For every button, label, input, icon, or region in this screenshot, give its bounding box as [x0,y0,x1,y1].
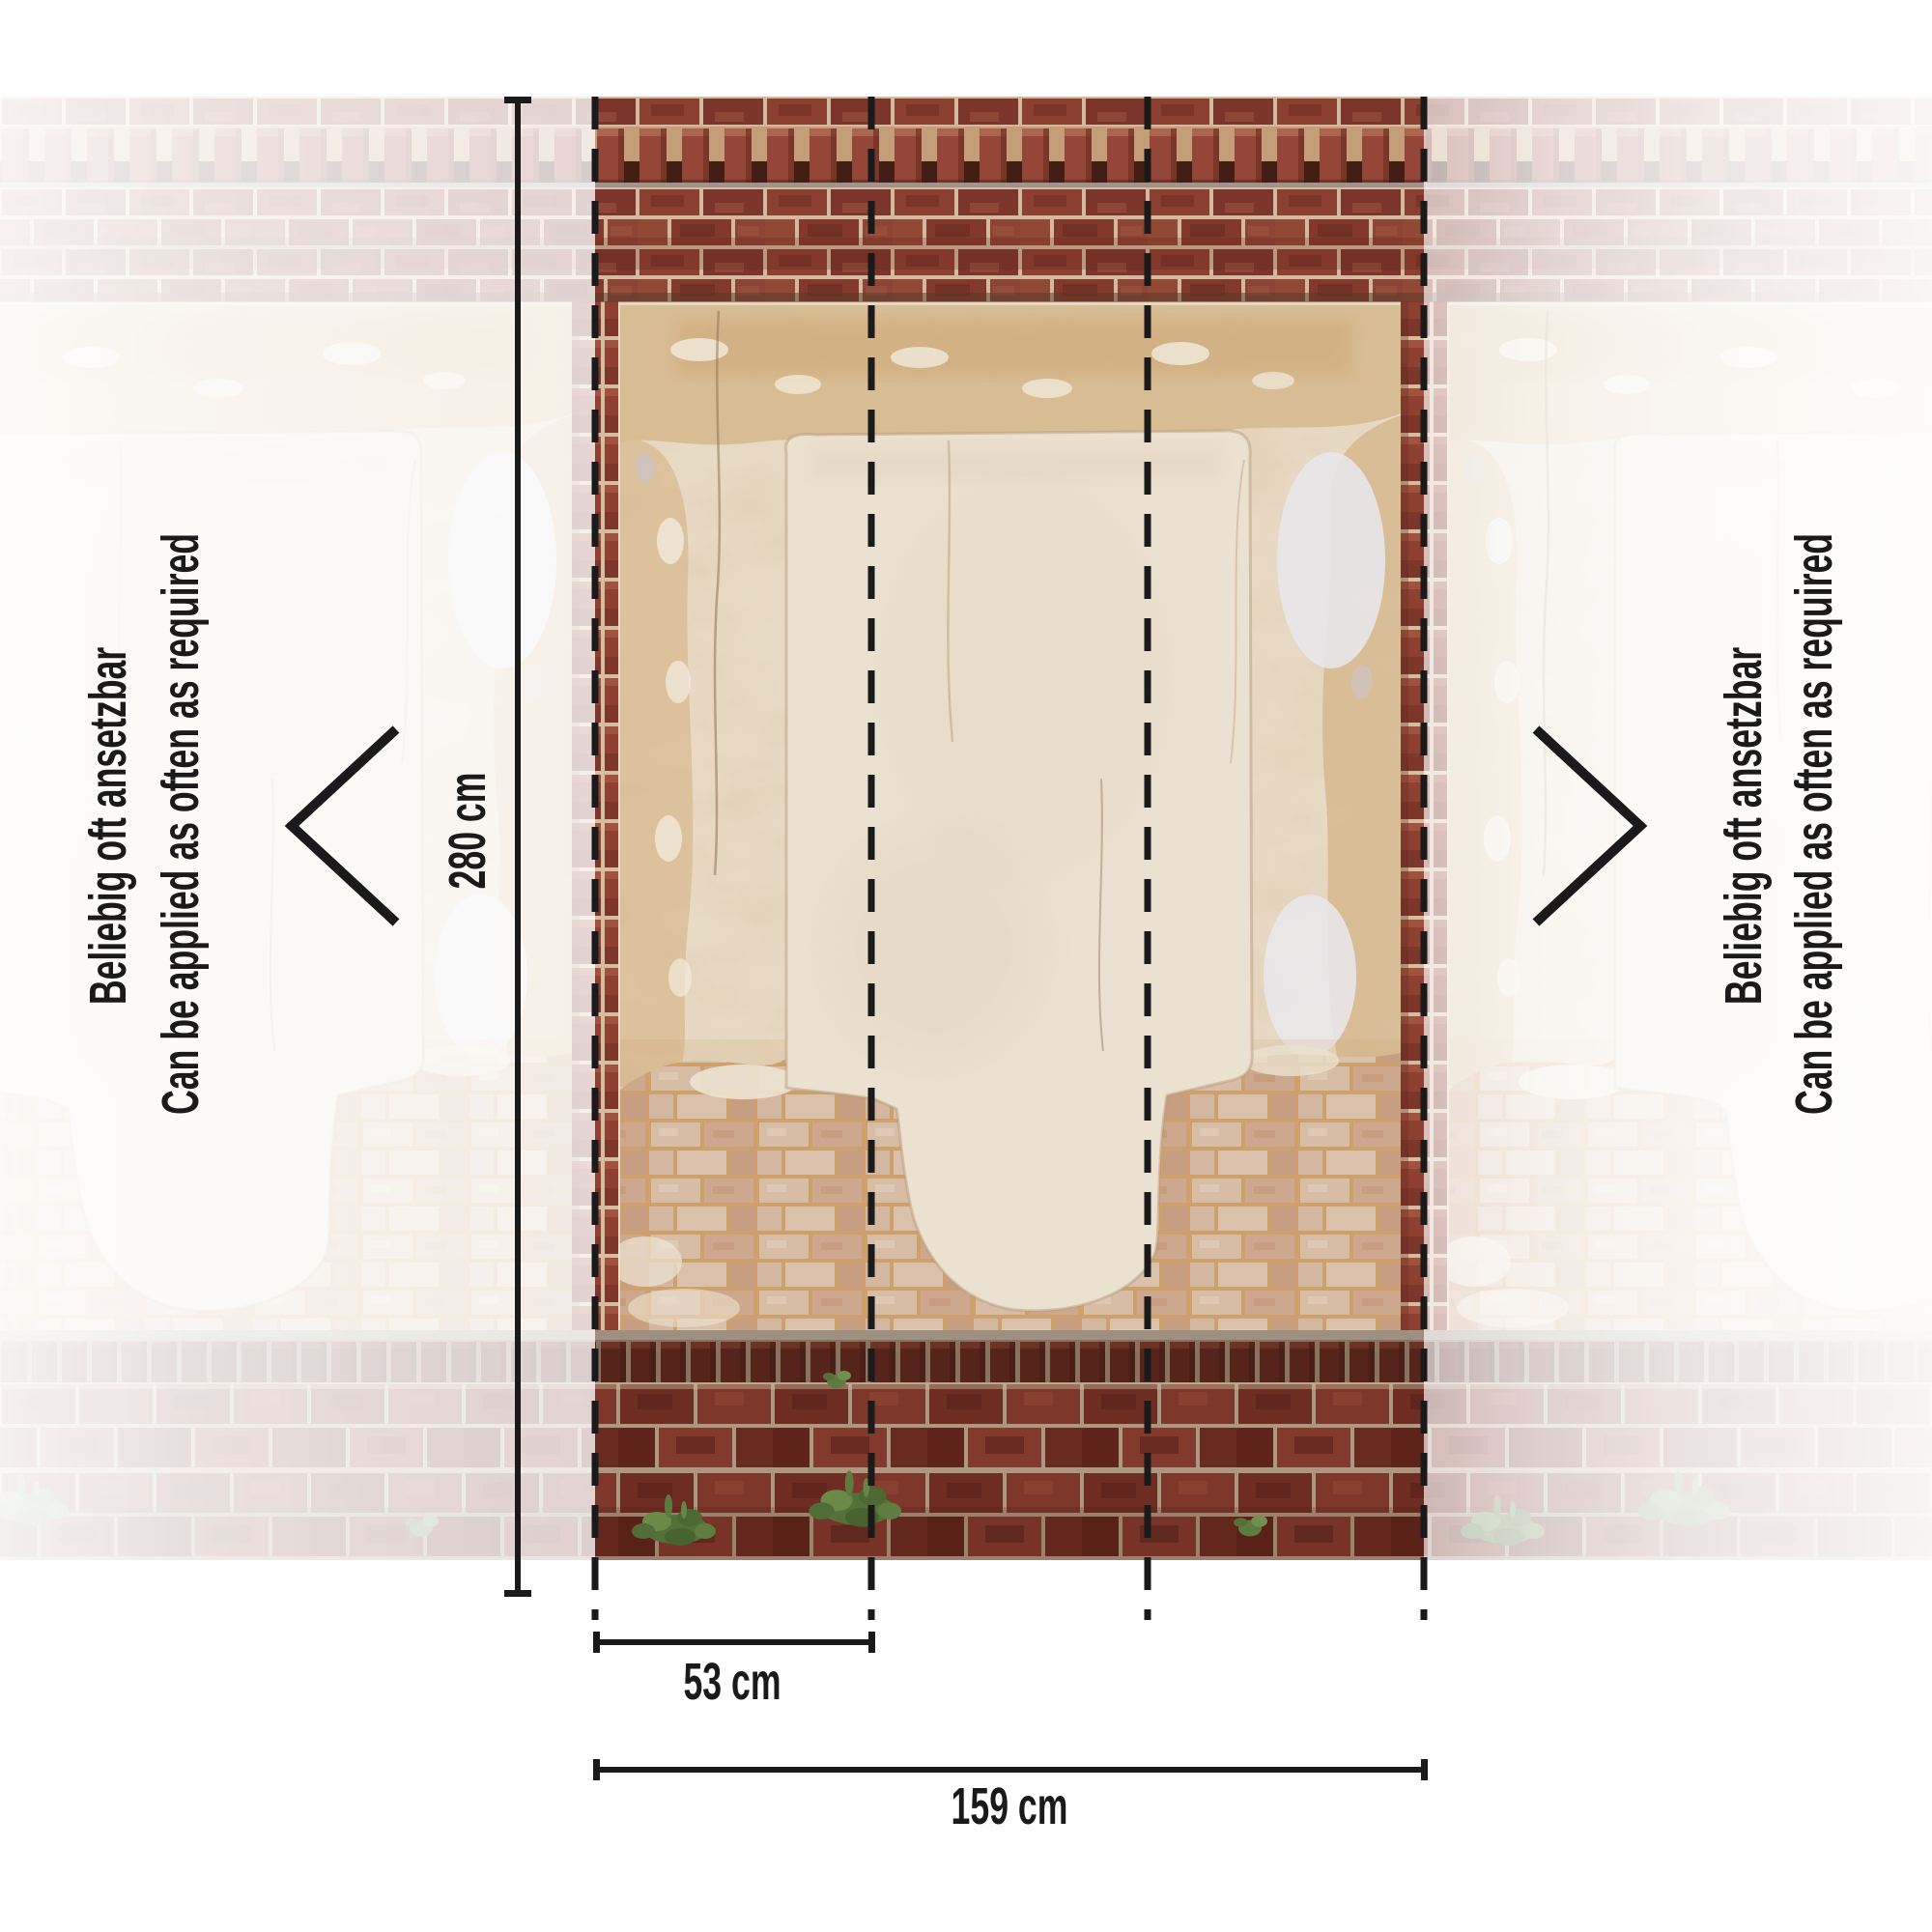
repeat-note-german-right: Beliebig oft ansetzbar [1718,647,1770,1005]
repeat-note-english-right: Can be applied as often as required [1788,533,1840,1115]
repeat-note-german-left: Beliebig oft ansetzbar [82,647,134,1005]
right-fade-overlay [1424,97,1932,1560]
height-dimension-label: 280 cm [441,773,494,890]
repeat-note-english-left: Can be applied as often as required [155,533,207,1115]
wall-photo [0,0,1932,1932]
wallpaper-measurement-diagram: Beliebig oft ansetzbar Can be applied as… [0,0,1932,1932]
panel-width-dimension-line [596,1632,872,1653]
total-width-dimension-label: 159 cm [952,1780,1068,1833]
panel-width-dimension-label: 53 cm [683,1656,781,1708]
